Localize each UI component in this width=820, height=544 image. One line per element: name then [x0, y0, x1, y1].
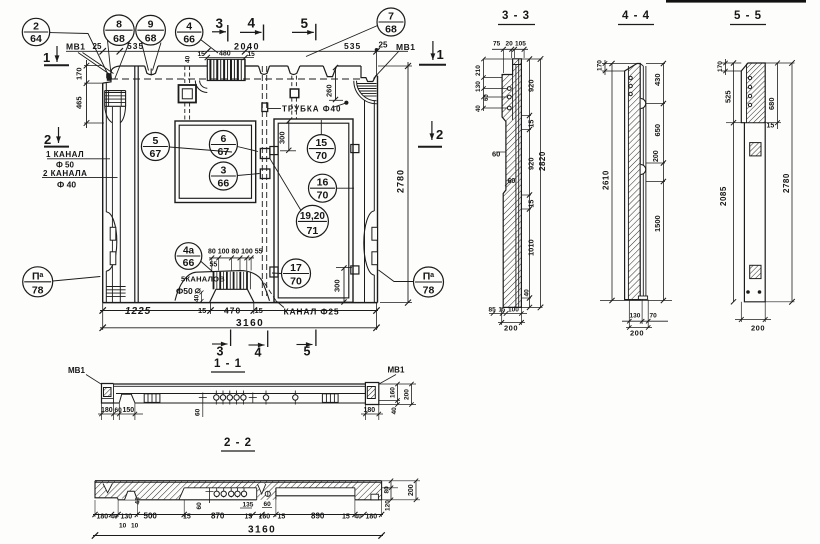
svg-text:5 - 5: 5 - 5 — [734, 10, 762, 22]
svg-text:78: 78 — [423, 285, 435, 297]
svg-text:25: 25 — [93, 42, 102, 51]
svg-text:200: 200 — [504, 324, 518, 333]
svg-text:15: 15 — [767, 123, 775, 130]
svg-text:2 - 2: 2 - 2 — [224, 437, 252, 449]
svg-text:15: 15 — [278, 514, 286, 521]
svg-text:20: 20 — [506, 41, 514, 48]
svg-text:71: 71 — [307, 225, 319, 237]
svg-text:60: 60 — [508, 178, 516, 185]
svg-text:10: 10 — [119, 523, 127, 530]
svg-text:500: 500 — [144, 512, 158, 521]
svg-text:67: 67 — [150, 148, 162, 160]
svg-text:10: 10 — [131, 523, 139, 530]
svg-text:130: 130 — [121, 514, 133, 521]
svg-text:15: 15 — [529, 200, 536, 208]
svg-text:40: 40 — [476, 105, 482, 112]
svg-text:85: 85 — [489, 307, 497, 314]
svg-text:66: 66 — [218, 178, 230, 190]
svg-text:2780: 2780 — [396, 169, 406, 193]
svg-text:66: 66 — [183, 33, 195, 45]
svg-text:920: 920 — [527, 157, 536, 170]
svg-text:260: 260 — [325, 84, 334, 97]
svg-text:525: 525 — [724, 90, 733, 103]
svg-text:4: 4 — [186, 21, 192, 33]
svg-text:430: 430 — [653, 73, 662, 86]
svg-text:1: 1 — [43, 50, 50, 65]
svg-text:64: 64 — [30, 33, 42, 45]
svg-text:200: 200 — [653, 150, 660, 162]
svg-text:3: 3 — [216, 16, 224, 31]
svg-text:120: 120 — [385, 500, 392, 511]
svg-text:70: 70 — [290, 276, 302, 288]
svg-text:15: 15 — [499, 308, 506, 314]
svg-text:535: 535 — [127, 41, 144, 51]
svg-text:68: 68 — [385, 24, 397, 36]
svg-text:4: 4 — [248, 16, 256, 31]
svg-text:40: 40 — [185, 55, 192, 63]
svg-text:480: 480 — [219, 51, 231, 58]
svg-text:130: 130 — [475, 81, 482, 92]
svg-text:Ф50: Ф50 — [176, 286, 193, 296]
svg-text:60: 60 — [115, 407, 123, 414]
svg-text:5: 5 — [152, 135, 158, 147]
svg-text:4 - 4: 4 - 4 — [622, 10, 650, 22]
svg-text:100: 100 — [508, 307, 519, 314]
svg-text:6: 6 — [220, 133, 226, 145]
svg-text:МВ1: МВ1 — [68, 366, 85, 375]
svg-text:200: 200 — [404, 389, 411, 400]
svg-text:68: 68 — [145, 33, 157, 45]
svg-text:870: 870 — [211, 512, 225, 521]
svg-text:15: 15 — [342, 514, 350, 521]
svg-text:150: 150 — [123, 407, 135, 414]
svg-text:40: 40 — [194, 294, 201, 302]
svg-text:650: 650 — [653, 124, 662, 137]
svg-text:66: 66 — [183, 257, 195, 269]
svg-text:2: 2 — [33, 21, 39, 33]
svg-text:200: 200 — [408, 484, 415, 496]
svg-text:465: 465 — [75, 96, 84, 109]
svg-text:60: 60 — [264, 501, 272, 508]
svg-text:60: 60 — [195, 408, 202, 416]
svg-text:КАНАЛ Ф25: КАНАЛ Ф25 — [284, 307, 340, 317]
svg-text:890: 890 — [311, 512, 325, 521]
svg-text:15: 15 — [245, 514, 253, 521]
svg-text:80: 80 — [384, 486, 391, 494]
svg-text:8: 8 — [116, 19, 122, 31]
svg-text:17: 17 — [290, 262, 302, 274]
svg-text:2: 2 — [436, 127, 443, 142]
svg-text:1 - 1: 1 - 1 — [214, 358, 242, 370]
svg-text:15: 15 — [315, 137, 327, 149]
svg-text:2040: 2040 — [234, 42, 260, 52]
svg-text:9: 9 — [148, 19, 154, 31]
svg-text:920: 920 — [527, 79, 536, 92]
svg-text:15: 15 — [529, 120, 536, 128]
svg-text:25: 25 — [379, 41, 388, 50]
svg-text:60: 60 — [492, 150, 500, 159]
svg-text:Пᵃ: Пᵃ — [423, 271, 435, 283]
svg-text:55: 55 — [210, 262, 218, 269]
svg-text:2610: 2610 — [602, 170, 611, 190]
svg-text:70: 70 — [317, 190, 329, 202]
svg-text:2820: 2820 — [538, 151, 547, 171]
svg-text:Ф 40: Ф 40 — [57, 179, 76, 189]
svg-text:3160: 3160 — [236, 318, 264, 329]
svg-text:300: 300 — [333, 279, 342, 292]
svg-text:40: 40 — [524, 289, 531, 297]
svg-text:45: 45 — [135, 497, 142, 505]
svg-text:135: 135 — [243, 502, 254, 509]
svg-text:МВ1: МВ1 — [388, 366, 405, 375]
svg-text:200: 200 — [630, 329, 644, 338]
svg-text:75: 75 — [493, 41, 501, 48]
svg-text:70: 70 — [650, 313, 658, 320]
svg-text:40: 40 — [391, 407, 398, 415]
svg-text:60: 60 — [484, 94, 490, 101]
svg-text:5: 5 — [304, 345, 311, 359]
svg-text:160: 160 — [390, 387, 397, 398]
svg-text:МВ1: МВ1 — [396, 42, 415, 52]
svg-text:5КАНАЛОВ: 5КАНАЛОВ — [181, 274, 225, 283]
svg-text:180: 180 — [364, 407, 376, 414]
svg-text:210: 210 — [475, 65, 482, 76]
svg-text:170: 170 — [75, 67, 84, 80]
svg-text:300: 300 — [278, 131, 287, 144]
svg-text:3: 3 — [217, 345, 224, 359]
svg-text:130: 130 — [630, 313, 641, 320]
svg-text:68: 68 — [113, 33, 125, 45]
svg-text:15: 15 — [198, 306, 206, 315]
svg-text:40: 40 — [111, 514, 119, 521]
svg-text:160: 160 — [259, 514, 271, 521]
svg-text:170: 170 — [597, 60, 604, 71]
svg-text:1500: 1500 — [653, 215, 662, 232]
svg-text:2: 2 — [44, 132, 51, 147]
svg-text:15: 15 — [198, 51, 206, 58]
svg-text:67: 67 — [218, 146, 230, 158]
svg-text:78: 78 — [32, 284, 44, 296]
svg-text:80 100 80 100 55: 80 100 80 100 55 — [208, 249, 263, 256]
svg-text:1225: 1225 — [125, 306, 151, 317]
svg-text:200: 200 — [751, 324, 765, 333]
svg-text:7: 7 — [388, 11, 394, 23]
svg-text:16: 16 — [317, 177, 329, 189]
svg-text:1 КАНАЛ: 1 КАНАЛ — [46, 150, 84, 159]
svg-text:170: 170 — [717, 61, 724, 72]
svg-text:180: 180 — [97, 514, 109, 521]
svg-text:3 - 3: 3 - 3 — [502, 10, 530, 22]
svg-text:535: 535 — [344, 41, 361, 51]
svg-text:2 КАНАЛА: 2 КАНАЛА — [43, 169, 87, 178]
svg-text:2085: 2085 — [719, 186, 728, 206]
svg-text:470: 470 — [224, 306, 241, 316]
svg-text:15: 15 — [183, 514, 191, 521]
svg-text:180: 180 — [366, 514, 378, 521]
svg-text:3160: 3160 — [248, 525, 276, 536]
svg-text:105: 105 — [515, 41, 526, 48]
svg-text:3: 3 — [220, 165, 226, 177]
svg-text:2780: 2780 — [782, 173, 791, 193]
svg-text:70: 70 — [315, 150, 327, 162]
svg-text:1010: 1010 — [527, 239, 536, 256]
svg-text:180: 180 — [101, 407, 113, 414]
svg-text:4а: 4а — [183, 246, 195, 257]
svg-text:4: 4 — [255, 346, 262, 360]
svg-text:Пᵃ: Пᵃ — [32, 270, 44, 282]
svg-text:15: 15 — [255, 306, 263, 315]
svg-text:40: 40 — [355, 514, 363, 521]
svg-text:МВ1: МВ1 — [66, 42, 85, 52]
svg-text:60: 60 — [196, 502, 203, 510]
svg-text:1: 1 — [437, 47, 444, 62]
svg-text:19,20: 19,20 — [300, 211, 325, 222]
svg-text:Ф 50: Ф 50 — [56, 160, 75, 169]
svg-text:680: 680 — [767, 97, 776, 110]
svg-text:15: 15 — [248, 51, 256, 58]
svg-text:ТРУБКА Ф40: ТРУБКА Ф40 — [282, 105, 341, 114]
svg-text:5: 5 — [301, 16, 309, 31]
